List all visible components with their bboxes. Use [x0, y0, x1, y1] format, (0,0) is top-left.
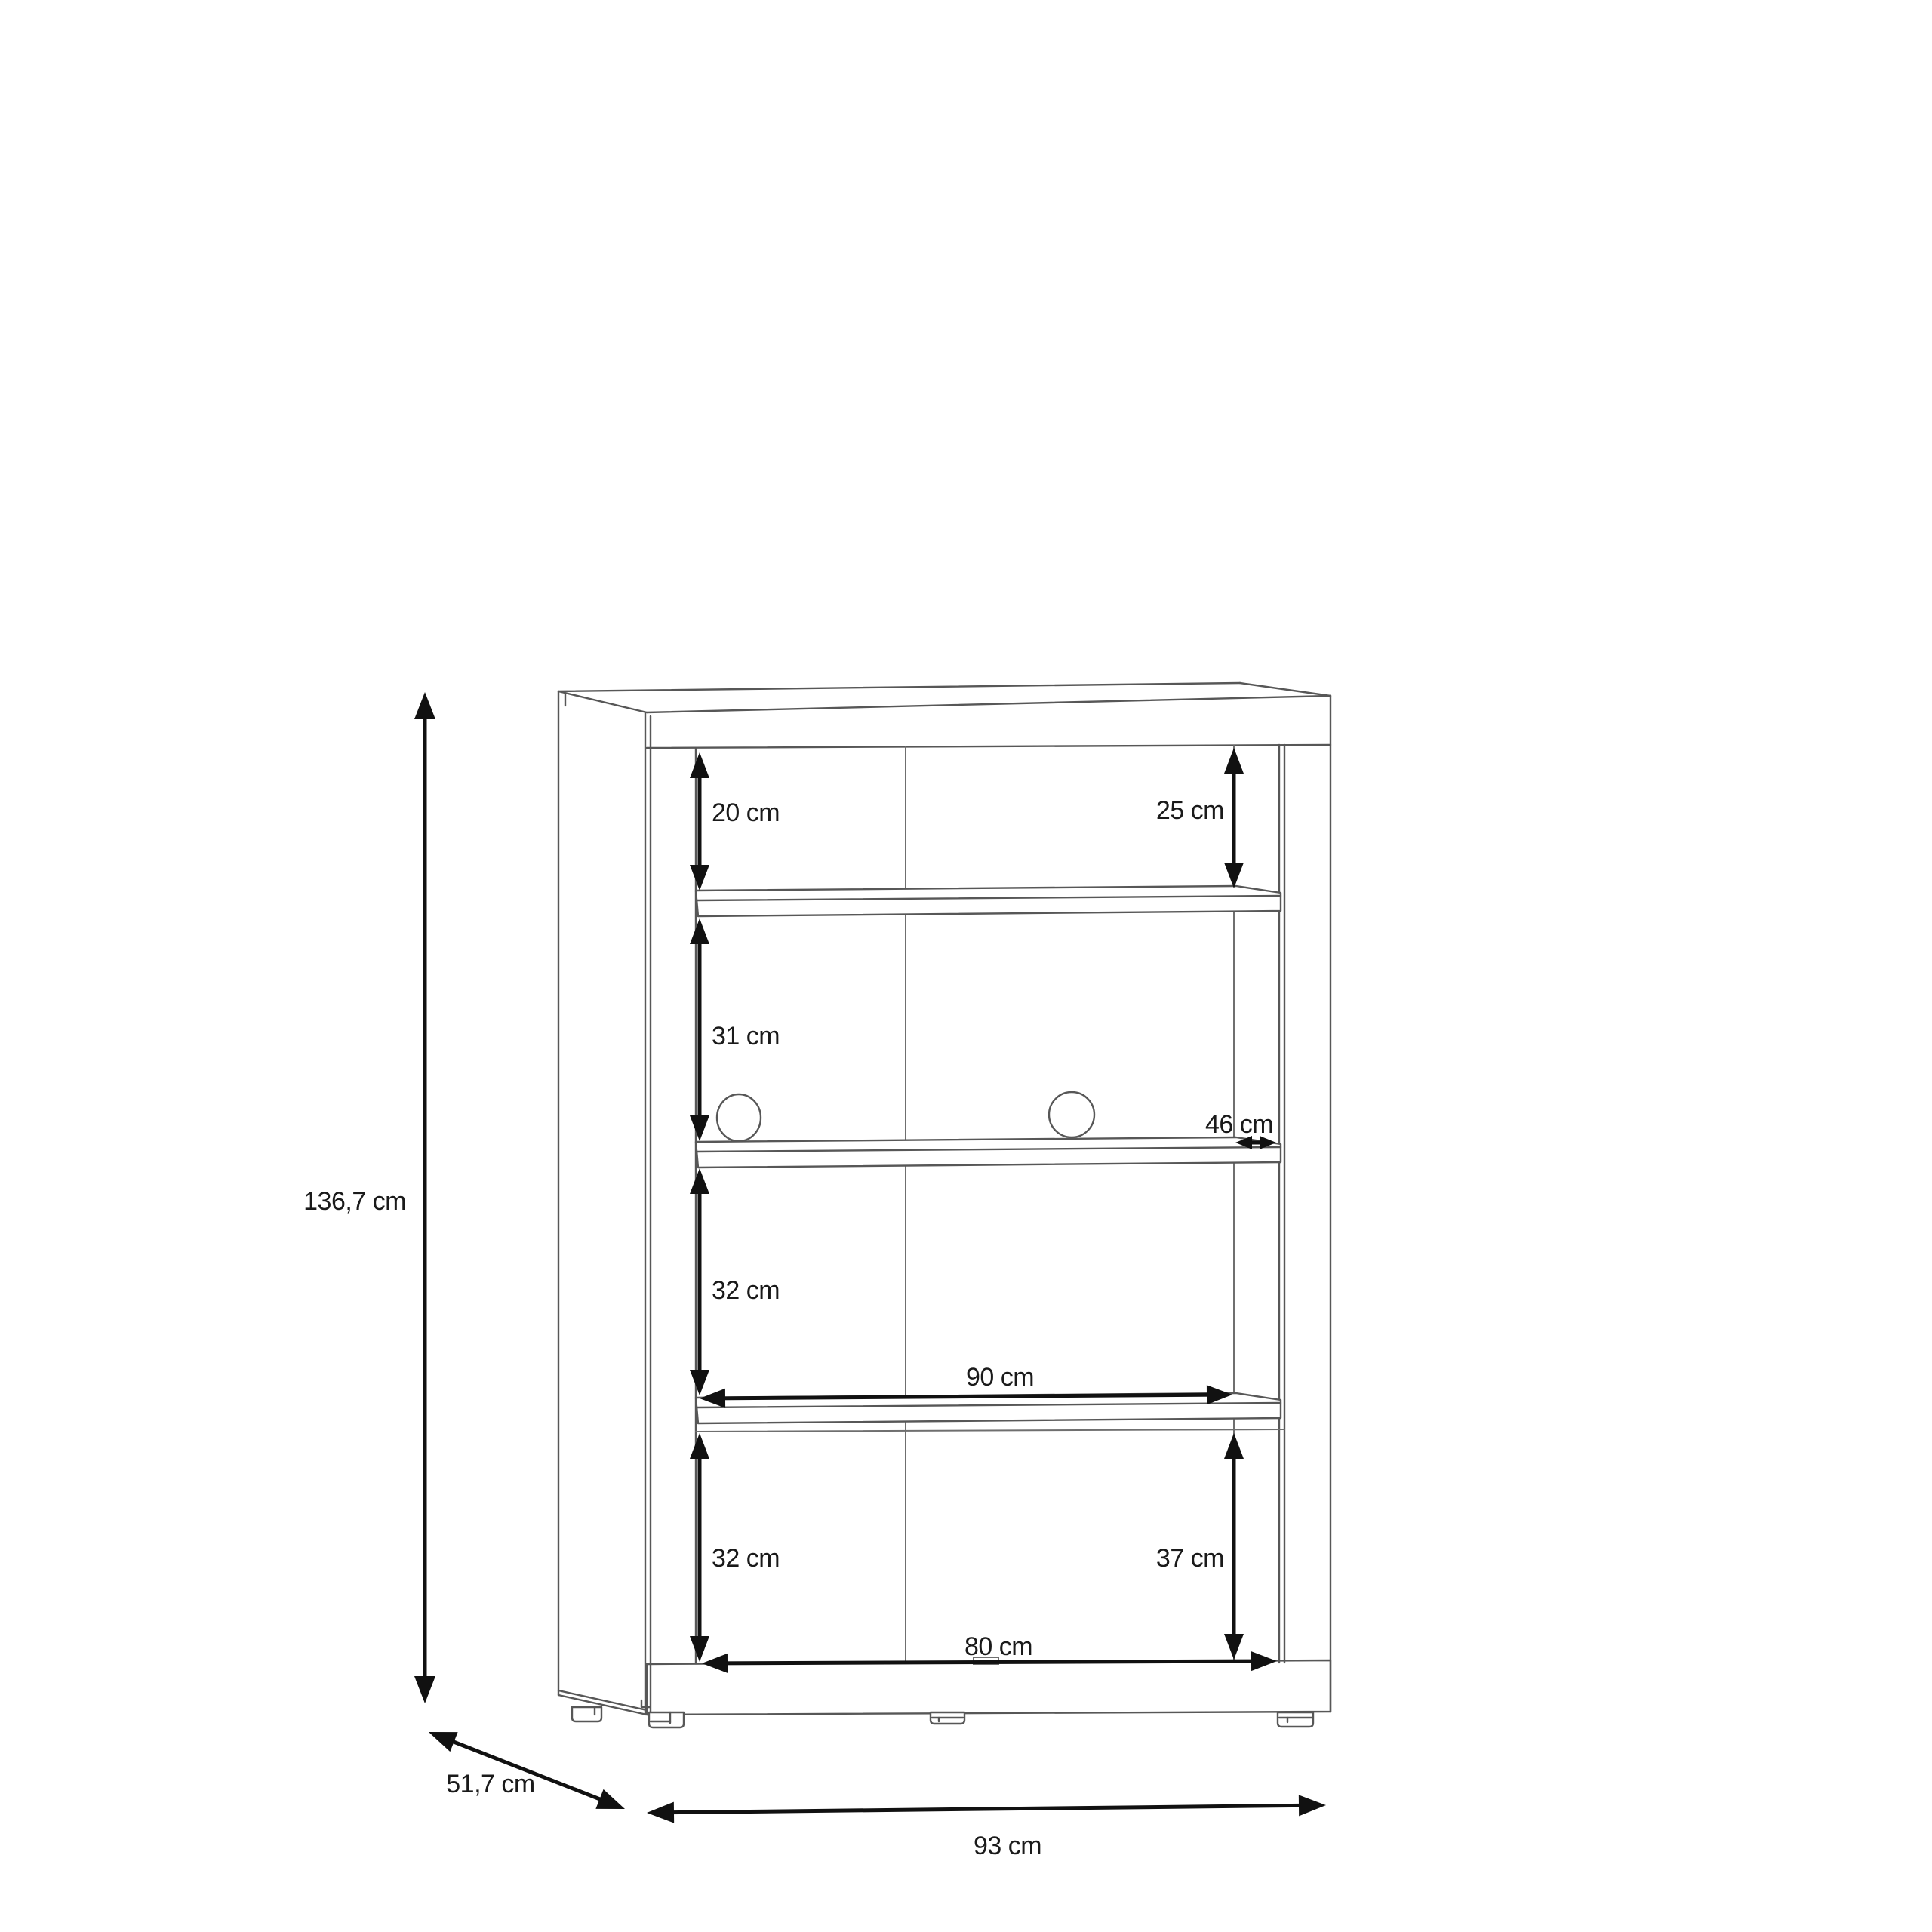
cable-hole-right	[1049, 1092, 1094, 1137]
foot-front-middle	[931, 1712, 964, 1724]
label-shelf-width: 90 cm	[966, 1363, 1034, 1392]
label-overall-depth: 51,7 cm	[446, 1770, 534, 1798]
label-gap-third: 32 cm	[712, 1276, 780, 1305]
label-overall-width: 93 cm	[974, 1832, 1041, 1860]
label-gap-bottom-left: 32 cm	[712, 1544, 780, 1573]
shelf-2-body	[696, 1137, 1281, 1168]
label-bottom-width: 80 cm	[964, 1632, 1032, 1661]
foot-back-left	[572, 1707, 601, 1721]
bottom-board	[647, 1660, 1331, 1715]
dimension-diagram: 136,7 cm 51,7 cm 93 cm 20 cm 25 cm 31 cm…	[0, 0, 1932, 1932]
label-gap-bottom-right: 37 cm	[1156, 1544, 1224, 1573]
label-gap-top-left: 20 cm	[712, 798, 780, 827]
label-interior-depth: 46 cm	[1205, 1110, 1273, 1139]
cable-hole-left	[717, 1094, 761, 1141]
shelf-1-body	[696, 886, 1281, 916]
label-gap-second: 31 cm	[712, 1022, 780, 1051]
foot-front-left	[649, 1712, 684, 1727]
foot-front-right	[1278, 1712, 1313, 1727]
label-overall-height: 136,7 cm	[303, 1187, 406, 1216]
shelf-1	[696, 886, 1281, 916]
label-gap-top-right: 25 cm	[1156, 796, 1224, 825]
shelf-2	[696, 1137, 1281, 1168]
